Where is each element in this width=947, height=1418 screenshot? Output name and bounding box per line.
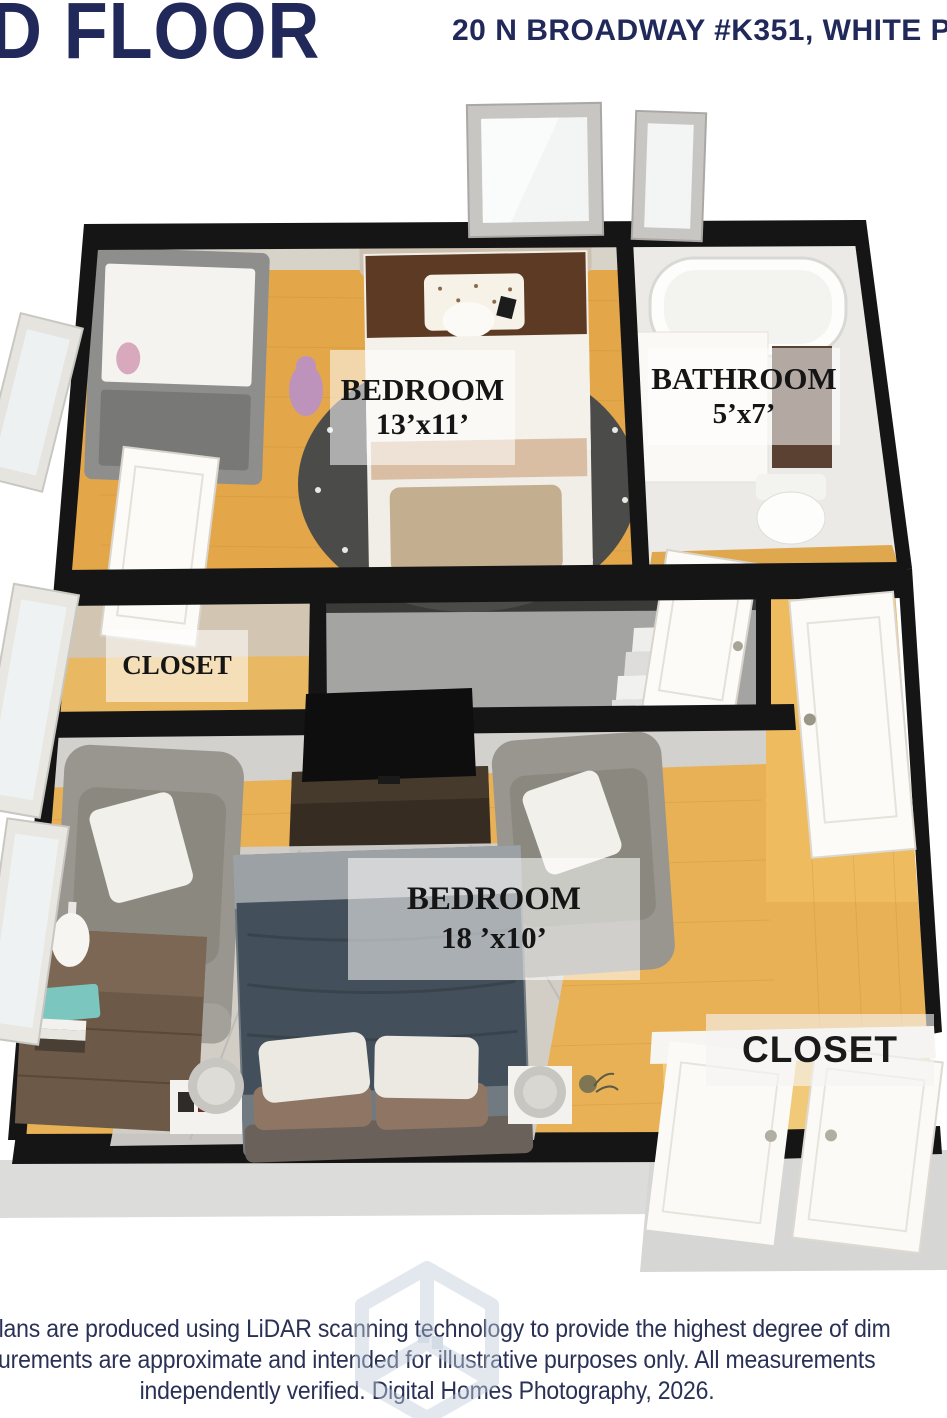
room-name: CLOSET — [742, 1029, 898, 1072]
floor-plan-rendering — [0, 0, 947, 1418]
room-label-closet-2: CLOSET — [706, 1014, 934, 1086]
room-name: CLOSET — [122, 650, 232, 681]
window-top-narrow — [632, 111, 706, 241]
room-dimensions: 5’x7’ — [713, 397, 776, 432]
disclaimer-line-1: plans are produced using LiDAR scanning … — [0, 1315, 891, 1344]
disclaimer: plans are produced using LiDAR scanning … — [0, 1300, 947, 1418]
bedroom-door-right — [789, 592, 915, 858]
room-name: BEDROOM — [407, 881, 581, 919]
room-label-closet-1: CLOSET — [106, 630, 248, 702]
room-name: BEDROOM — [341, 372, 505, 408]
room-label-bedroom-2: BEDROOM 18 ’x10’ — [348, 858, 640, 980]
room-dimensions: 18 ’x10’ — [441, 919, 547, 956]
tv — [302, 688, 476, 784]
toilet — [756, 474, 826, 544]
disclaimer-line-3: independently verified. Digital Homes Ph… — [140, 1377, 715, 1406]
room-label-bedroom-1: BEDROOM 13’x11’ — [330, 350, 515, 465]
room-label-bathroom: BATHROOM 5’x7’ — [648, 348, 840, 445]
property-address: 20 N BROADWAY #K351, WHITE PL — [452, 14, 947, 48]
window-top-large — [467, 103, 603, 237]
disclaimer-line-2: urements are approximate and intended fo… — [0, 1346, 875, 1375]
crib — [84, 247, 270, 485]
room-dimensions: 13’x11’ — [376, 407, 469, 443]
room-name: BATHROOM — [651, 361, 836, 397]
floor-plan-page: D FLOOR 20 N BROADWAY #K351, WHITE PL BE… — [0, 0, 947, 1418]
floor-title: D FLOOR — [0, 0, 320, 77]
